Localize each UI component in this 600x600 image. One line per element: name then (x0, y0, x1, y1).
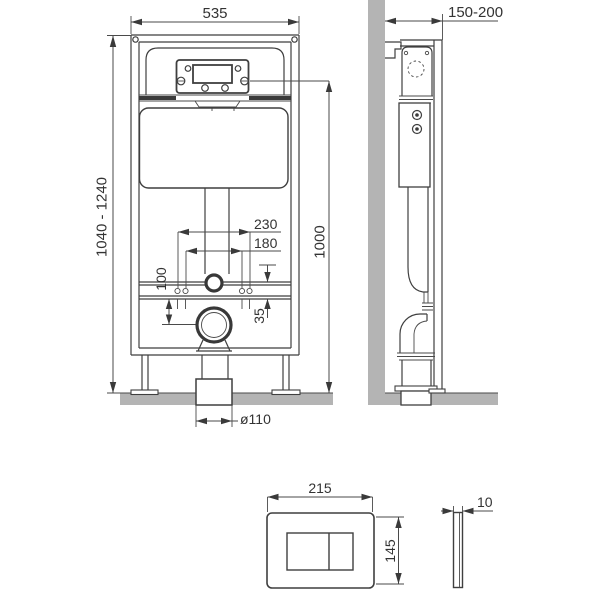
waste-outlet (162, 308, 232, 351)
drain-pipe (202, 355, 228, 379)
band-bar-right (249, 96, 291, 100)
dim-label-plate-thickness: 10 (477, 494, 493, 510)
access-box (399, 103, 430, 187)
dim-fixing-inner: 180 (186, 235, 281, 288)
band-bar-left (139, 96, 176, 100)
dim-label-height-range: 1040 - 1240 (94, 177, 111, 257)
side-drain (401, 391, 431, 405)
corner-screw-left (133, 37, 138, 42)
dim-label-frame-width: 535 (202, 5, 227, 22)
dim-label-rail-offset: 35 (251, 308, 267, 324)
dim-plate-thickness: 10 (441, 494, 493, 514)
cistern-outline (140, 108, 289, 188)
wall-bracket (385, 42, 401, 58)
technical-drawing-canvas: 535 1040 - 1240 1000 230 180 100 (0, 0, 600, 600)
plate-side-outline (454, 513, 463, 588)
side-view (385, 40, 445, 405)
outlet-circle (197, 308, 231, 342)
dim-drain-diameter: ø110 (196, 405, 271, 427)
rail-foot (429, 389, 445, 393)
outlet-bend (397, 314, 435, 386)
inlet-circle (206, 275, 222, 291)
flush-plate-side (454, 513, 463, 588)
dim-label-fixing-outer: 230 (254, 216, 278, 232)
plate-buttons (287, 533, 353, 570)
installation-drawing: 535 1040 - 1240 1000 230 180 100 (0, 0, 600, 600)
flush-pipe (205, 188, 229, 274)
dim-label-fixing-inner: 180 (254, 235, 278, 251)
dim-plate-height: 145 (376, 517, 404, 584)
duct-socket (422, 292, 433, 310)
dim-depth-range: 150-200 (385, 4, 503, 40)
wall-side (368, 0, 385, 405)
valve-lid (195, 101, 240, 107)
dim-label-install-height: 1000 (312, 225, 329, 258)
tank-pin-left (404, 51, 407, 54)
dim-frame-width: 535 (131, 5, 299, 34)
flush-plate-front (267, 513, 374, 588)
dim-label-outlet-offset: 100 (153, 267, 169, 291)
plate-outline (267, 513, 374, 588)
tank-pin-right (425, 51, 428, 54)
control-box (177, 60, 249, 93)
dim-height-range: 1040 - 1240 (94, 36, 132, 394)
side-flush-duct (408, 187, 428, 292)
dim-plate-width: 215 (268, 480, 373, 512)
side-rails (400, 40, 442, 389)
dim-label-depth-range: 150-200 (448, 4, 503, 21)
drain-collar (196, 379, 232, 405)
tank-flange (399, 96, 433, 103)
dim-label-drain-diameter: ø110 (240, 411, 271, 427)
foot-right (272, 390, 300, 395)
tank-inlet-dashed (408, 61, 424, 77)
dim-label-plate-width: 215 (308, 480, 332, 496)
dim-rail-offset: 35 (251, 265, 276, 324)
foot-left (131, 390, 158, 395)
corner-screw-right (292, 37, 297, 42)
dim-label-plate-height: 145 (382, 539, 398, 563)
